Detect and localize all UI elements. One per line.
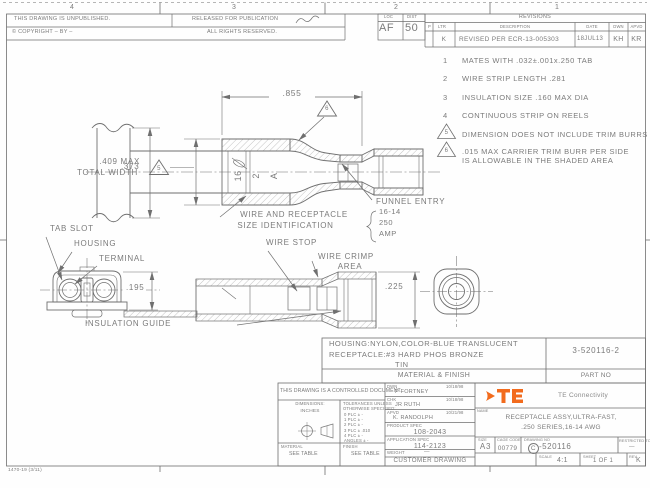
note-4-num: 4 — [443, 112, 448, 120]
finish-value: SEE TABLE — [351, 452, 380, 458]
revisions-col-date: DATE — [575, 25, 609, 30]
drawing-no-value: C-520116 — [528, 443, 571, 454]
size-value-1: 16-14 — [379, 208, 401, 216]
zone-2: 2 — [394, 4, 398, 12]
weight-value: — — [424, 450, 430, 456]
name-label: NAME — [477, 409, 488, 413]
product-spec-label: PRODUCT SPEC — [387, 424, 422, 429]
dwn-date: 10/18/98 — [446, 385, 464, 390]
mating-end-view — [420, 256, 493, 327]
housing-label: HOUSING — [74, 240, 116, 249]
dim-195: .195 — [124, 284, 146, 293]
insulation-guide-label: INSULATION GUIDE — [85, 320, 171, 329]
customer-drawing-label: CUSTOMER DRAWING — [385, 458, 475, 465]
loc-label: LOC — [384, 15, 393, 20]
zone-3: 3 — [232, 4, 236, 12]
dimensions-label: DIMENSIONS: — [280, 402, 340, 407]
apvd-name: K. RANDOLPH — [393, 416, 433, 422]
te-logo-icon — [486, 389, 523, 403]
finish-label: FINISH — [343, 445, 358, 450]
revisions-col-dwn: DWN — [609, 25, 628, 30]
product-spec-value: 108-2043 — [385, 429, 475, 437]
controlled-doc-note: THIS DRAWING IS A CONTROLLED DOCUMENT. — [280, 389, 402, 395]
revisions-col-p: P — [428, 25, 431, 30]
tolerance-row-angles: ANGLES ± - — [344, 439, 369, 444]
size-value: A3 — [477, 443, 494, 452]
sheet-value: 1 OF 1 — [593, 458, 613, 464]
revisions-col-apvd: APVD — [628, 25, 645, 30]
application-spec-value: 114-2123 — [385, 443, 475, 451]
cage-code-value: 00779 — [495, 445, 520, 452]
dim-flag-5-digit: 5 — [152, 166, 166, 172]
restricted-to-value: — — [629, 445, 635, 451]
size-value-3: AMP — [379, 230, 397, 238]
chk-date: 10/18/98 — [446, 398, 464, 403]
size-list-brace — [367, 211, 376, 242]
size-value-2: 250 — [379, 219, 393, 227]
cage-code-label: CAGE CODE — [497, 438, 521, 442]
signature-scribble — [296, 16, 319, 23]
drawing-name-line1: RECEPTACLE ASSY,ULTRA-FAST, — [477, 414, 645, 421]
chk-name: JR RUTH — [395, 403, 420, 409]
note-2-num: 2 — [443, 75, 448, 83]
size-id-line1: WIRE AND RECEPTACLE — [224, 211, 364, 220]
note-6-text-line1: .015 MAX CARRIER TRIM BURR PER SIDE — [462, 148, 629, 156]
note-4-text: CONTINUOUS STRIP ON REELS — [462, 112, 589, 120]
wire-crimp-label-line1: WIRE CRIMP — [318, 253, 374, 262]
note-3-text: INSULATION SIZE .160 MAX DIA — [462, 94, 589, 102]
tab-slot-label: TAB SLOT — [50, 225, 94, 234]
form-number: 1470-19 (3/11) — [8, 468, 42, 473]
dim-855: .855 — [269, 89, 315, 98]
stamp-2: 2 — [252, 167, 262, 185]
note-2-text: WIRE STRIP LENGTH .281 — [462, 75, 566, 83]
revisions-col-ltr: LTR — [438, 25, 446, 30]
weight-label: WEIGHT — [387, 451, 405, 456]
stamp-16: 16 — [234, 167, 244, 185]
material-line2: RECEPTACLE:#3 HARD PHOS BRONZE — [329, 351, 484, 359]
note-1-text: MATES WITH .032±.001x.250 TAB — [462, 57, 593, 65]
dim-225: .225 — [383, 283, 405, 292]
unpublished-note: THIS DRAWING IS UNPUBLISHED. — [14, 17, 110, 23]
rights-note: ALL RIGHTS RESERVED. — [207, 30, 277, 36]
rev-value: K — [636, 457, 641, 465]
released-note: RELEASED FOR PUBLICATION — [192, 17, 278, 23]
application-spec-label: APPLICATION SPEC — [387, 438, 429, 443]
note-3-num: 3 — [443, 94, 448, 102]
revisions-col-desc: DESCRIPTION — [455, 25, 575, 30]
drawing-name-line2: .250 SERIES,16-14 AWG — [477, 424, 645, 431]
funnel-entry-label: FUNNEL ENTRY — [376, 198, 445, 207]
material-finish-header: MATERIAL & FINISH — [322, 372, 546, 380]
dim-flag-6-digit: 6 — [320, 106, 334, 112]
projection-symbol-icon — [298, 422, 333, 440]
material-line1: HOUSING:NYLON,COLOR-BLUE TRANSLUCENT — [329, 340, 518, 348]
size-id-line2: SIZE IDENTIFICATION — [207, 222, 364, 231]
apvd-date: 10/21/98 — [446, 411, 464, 416]
note-1-num: 1 — [443, 57, 448, 65]
revision-row-dwn: KH — [609, 36, 628, 44]
company-name: TE Connectivity — [558, 392, 608, 399]
loc-value: AF — [379, 23, 402, 35]
wire-crimp-label-line2: AREA — [318, 263, 382, 272]
part-number: 3-520116-2 — [546, 347, 646, 356]
revision-row-date: 18JUL13 — [577, 36, 603, 42]
note-5-num: 5 — [441, 130, 452, 136]
scale-label: SCALE — [539, 455, 552, 459]
note-6-text-line2: IS ALLOWABLE IN THE SHADED AREA — [462, 157, 613, 165]
dist-value: 50 — [405, 23, 424, 35]
wire-stop-label: WIRE STOP — [266, 239, 317, 248]
copyright-note: © COPYRIGHT – BY – — [12, 30, 73, 36]
revision-row-desc: REVISED PER ECR-13-005303 — [459, 36, 559, 43]
part-no-label: PART NO — [546, 372, 646, 379]
revision-row-ltr: K — [433, 36, 455, 43]
stamp-a: A — [270, 167, 280, 185]
zone-1: 1 — [555, 4, 559, 12]
scale-value: 4:1 — [557, 457, 568, 465]
c-size-circle-icon: C — [528, 443, 539, 454]
zone-4: 4 — [70, 4, 74, 12]
note-5-text: DIMENSION DOES NOT INCLUDE TRIM BURRS — [462, 131, 648, 139]
units-value: INCHES — [280, 409, 340, 414]
material-value: SEE TABLE — [289, 452, 318, 458]
engineering-drawing-sheet: 4 3 2 1 THIS DRAWING IS UNPUBLISHED. REL… — [0, 0, 650, 488]
material-label: MATERIAL — [281, 445, 303, 450]
dist-label: DIST — [407, 15, 417, 20]
revision-row-apvd: KR — [628, 36, 645, 44]
revisions-title: REVISIONS — [425, 15, 645, 21]
material-line3: TIN — [395, 361, 409, 369]
terminal-label: TERMINAL — [99, 255, 145, 264]
dwn-name: P FORTNEY — [395, 390, 429, 396]
dim-373: .373 — [121, 163, 139, 172]
restricted-to-label: RESTRICTED TO — [619, 439, 650, 443]
note-6-num: 6 — [441, 148, 452, 154]
